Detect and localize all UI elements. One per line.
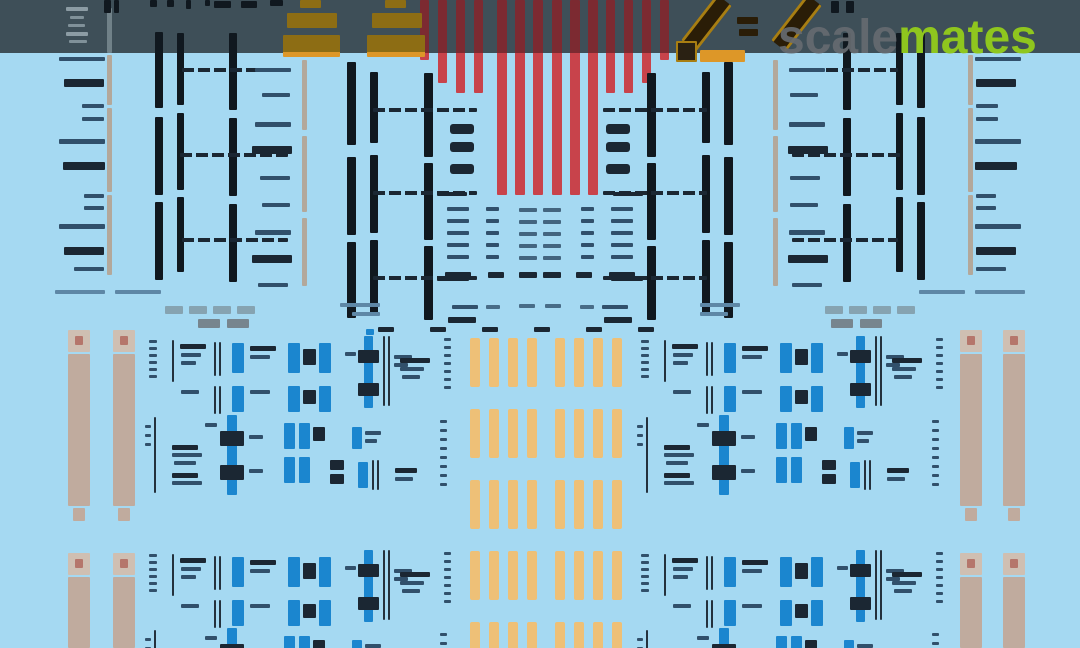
- band-decals-mark: [114, 0, 119, 13]
- panel-row-b-mark: [822, 474, 836, 484]
- panel-row-a-mark: [673, 575, 688, 579]
- decal-sheet-photo: scalemates: [0, 0, 1080, 648]
- center-data-grid-mark: [543, 208, 561, 212]
- gold-decals-mark: [372, 13, 422, 28]
- stencil-text-columns-mark: [792, 283, 822, 287]
- panel-row-b-mark: [299, 457, 310, 483]
- stencil-text-columns-mark: [258, 283, 288, 287]
- gold-box: [676, 41, 697, 62]
- panel-row-a-mark: [181, 575, 196, 579]
- center-tan-bars-mark: [527, 480, 537, 529]
- panel-row-a-mark: [850, 564, 871, 577]
- center-data-grid-mark: [486, 255, 499, 259]
- band-decals-mark: [241, 1, 257, 8]
- panel-row-a-mark: [850, 597, 871, 610]
- panel-row-b-mark: [299, 423, 310, 449]
- center-tan-bars-mark: [489, 551, 499, 600]
- walkway-red-stripes-mark: [606, 0, 615, 93]
- panel-row-a-mark: [364, 336, 373, 408]
- panel-row-a-mark: [936, 362, 943, 365]
- panel-row-a-mark: [892, 581, 916, 585]
- walkway-red-stripes-mark: [642, 0, 651, 83]
- panel-row-b-mark: [440, 420, 447, 423]
- panel-row-a-mark: [936, 600, 943, 603]
- panel-row-b-mark: [205, 423, 217, 427]
- crossbar-stencil-lines-mark: [182, 238, 288, 242]
- panel-row-a-mark: [936, 576, 943, 579]
- panel-row-a-mark: [181, 361, 196, 365]
- gold-decals-mark: [287, 13, 337, 28]
- center-data-grid-mark: [519, 232, 537, 236]
- stencil-text-columns-mark: [255, 230, 291, 235]
- edge-tan-stripes-mark: [68, 577, 90, 648]
- panel-row-a-mark: [358, 597, 379, 610]
- crossbar-stencil-lines-mark: [373, 108, 477, 112]
- panel-row-a-mark: [180, 558, 206, 563]
- panel-row-a-mark: [673, 361, 688, 365]
- stencil-text-columns-mark: [255, 122, 291, 127]
- gray-registration-stripes-mark: [107, 108, 112, 192]
- edge-tan-stripes-mark: [1008, 508, 1020, 521]
- gold-decals-mark: [283, 35, 340, 57]
- stencil-black-bars-mark: [177, 197, 184, 272]
- center-tan-bars-mark: [593, 622, 603, 648]
- stencil-text-columns-mark: [198, 319, 220, 328]
- edge-tan-stripes-mark: [73, 508, 85, 521]
- center-tan-bars-mark: [527, 622, 537, 648]
- panel-row-a-mark: [892, 572, 922, 577]
- edge-tan-stripes-mark: [118, 508, 130, 521]
- center-data-grid-mark: [447, 231, 469, 235]
- panel-row-a-mark: [742, 390, 762, 394]
- panel-row-a-mark: [936, 568, 943, 571]
- stencil-black-bars-mark: [155, 202, 163, 280]
- panel-row-a-mark: [706, 556, 708, 590]
- panel-row-a-mark: [795, 604, 808, 618]
- panel-row-a-mark: [850, 383, 871, 396]
- walkway-red-stripes-mark: [474, 0, 483, 93]
- band-decals-mark: [70, 16, 84, 19]
- panel-row-a-mark: [149, 582, 157, 585]
- center-tan-bars-mark: [612, 622, 622, 648]
- gold-decals-mark: [700, 50, 745, 62]
- panel-row-a-mark: [936, 346, 943, 349]
- stencil-text-columns-mark: [975, 290, 1025, 294]
- center-tan-bars-mark: [508, 338, 518, 387]
- panel-row-b-mark: [358, 462, 368, 488]
- stencil-text-columns-mark: [790, 176, 820, 180]
- band-decals-mark: [214, 1, 231, 8]
- panel-row-b-mark: [932, 483, 939, 486]
- panel-row-b-mark: [220, 644, 244, 648]
- panel-row-b-mark: [145, 443, 151, 446]
- panel-row-a-mark: [232, 557, 244, 587]
- walkway-red-stripes-mark: [588, 0, 598, 195]
- panel-row-a-mark: [303, 604, 316, 618]
- edge-tan-stripes-mark: [1010, 336, 1018, 345]
- center-tan-bars-mark: [508, 480, 518, 529]
- center-data-grid-mark: [519, 272, 537, 278]
- gray-registration-stripes-mark: [302, 60, 307, 130]
- panel-row-b-mark: [440, 429, 447, 432]
- stencil-black-bars-mark: [347, 157, 356, 235]
- panel-row-b-mark: [932, 633, 939, 636]
- panel-row-b-mark: [857, 431, 873, 435]
- panel-row-a-mark: [811, 557, 823, 587]
- stencil-text-columns-mark: [976, 247, 1016, 255]
- panel-row-b-mark: [330, 460, 344, 470]
- center-tan-bars-mark: [527, 409, 537, 458]
- panel-row-a-mark: [388, 550, 390, 620]
- stencil-black-bars-mark: [647, 163, 656, 240]
- panel-row-a-mark: [673, 604, 691, 608]
- center-tan-bars-mark: [574, 480, 584, 529]
- panel-row-b-mark: [205, 636, 217, 640]
- panel-row-a-mark: [149, 589, 157, 592]
- panel-row-a-mark: [641, 568, 649, 571]
- edge-tan-stripes-mark: [1010, 559, 1018, 568]
- panel-row-b-mark: [637, 443, 643, 446]
- panel-row-b-mark: [284, 457, 295, 483]
- center-tan-bars-mark: [593, 551, 603, 600]
- panel-row-a-mark: [936, 552, 943, 555]
- center-tan-bars-mark: [612, 551, 622, 600]
- panel-row-b-mark: [284, 636, 295, 648]
- panel-row-b-mark: [220, 465, 244, 480]
- panel-row-a-mark: [400, 572, 430, 577]
- panel-row-a-mark: [303, 390, 316, 404]
- gray-registration-stripes-mark: [773, 218, 778, 286]
- stencil-text-columns-mark: [976, 206, 996, 210]
- panel-row-b-mark: [932, 438, 939, 441]
- stencil-text-columns-mark: [352, 312, 380, 316]
- stencil-text-columns-mark: [59, 139, 105, 144]
- band-decals-mark: [69, 40, 87, 43]
- panel-row-b-mark: [220, 431, 244, 446]
- panel-row-b-mark: [805, 640, 817, 648]
- center-tan-bars-mark: [489, 338, 499, 387]
- panel-row-a-mark: [780, 343, 792, 373]
- panel-row-a-mark: [383, 550, 385, 620]
- center-data-grid-mark: [613, 192, 643, 196]
- panel-row-a-mark: [875, 550, 877, 620]
- panel-row-a-mark: [181, 567, 201, 571]
- panel-row-a-mark: [641, 554, 649, 557]
- panel-row-b-mark: [377, 460, 379, 490]
- panel-row-b-mark: [791, 636, 802, 648]
- panel-row-b-mark: [154, 630, 156, 648]
- panel-row-a-mark: [444, 552, 451, 555]
- panel-row-b-mark: [145, 425, 151, 428]
- panel-row-a-mark: [936, 338, 943, 341]
- center-data-grid-mark: [543, 232, 561, 236]
- stencil-black-bars-mark: [424, 163, 433, 240]
- stencil-text-columns-mark: [788, 255, 828, 263]
- center-tan-bars-mark: [555, 409, 565, 458]
- panel-row-b-mark: [440, 456, 447, 459]
- panel-row-a-mark: [894, 375, 912, 379]
- panel-row-b-mark: [365, 439, 377, 443]
- walkway-red-stripes-mark: [515, 0, 525, 195]
- center-data-grid-mark: [447, 219, 469, 223]
- panel-row-a-mark: [219, 342, 221, 376]
- panel-row-b-mark: [637, 638, 643, 641]
- stencil-text-columns-mark: [790, 203, 818, 207]
- gold-decals-mark: [737, 17, 758, 24]
- edge-tan-stripes-mark: [113, 577, 135, 648]
- panel-row-a-mark: [288, 386, 300, 412]
- panel-row-a-mark: [444, 386, 451, 389]
- panel-row-a-mark: [742, 569, 762, 573]
- panel-row-a-mark: [850, 350, 871, 363]
- panel-row-b-mark: [172, 453, 202, 457]
- center-data-grid-mark: [448, 317, 476, 323]
- panel-row-a-mark: [795, 390, 808, 404]
- center-data-grid-mark: [519, 244, 537, 248]
- section-divider-marks-mark: [430, 327, 446, 332]
- edge-tan-stripes-mark: [75, 559, 83, 568]
- center-data-grid-mark: [488, 272, 504, 278]
- stencil-text-columns-mark: [976, 79, 1016, 87]
- edge-tan-stripes-mark: [120, 336, 128, 345]
- stencil-black-bars-mark: [917, 202, 925, 280]
- stencil-text-columns-mark: [860, 319, 882, 328]
- panel-row-a-mark: [149, 568, 157, 571]
- panel-row-a-mark: [214, 386, 216, 414]
- center-tan-bars-mark: [470, 622, 480, 648]
- stencil-black-bars-mark: [229, 118, 237, 196]
- stencil-text-columns-mark: [975, 162, 1017, 170]
- center-data-grid-mark: [447, 255, 469, 259]
- panel-row-a-mark: [664, 554, 666, 596]
- section-divider-marks-mark: [586, 327, 602, 332]
- stencil-text-columns-mark: [64, 79, 104, 87]
- panel-row-a-mark: [672, 558, 698, 563]
- stencil-black-bars-mark: [647, 73, 656, 157]
- stencil-text-columns-mark: [55, 290, 105, 294]
- panel-row-a-mark: [880, 550, 882, 620]
- panel-row-a-mark: [444, 584, 451, 587]
- stencil-text-columns-mark: [82, 117, 104, 121]
- panel-row-a-mark: [181, 604, 199, 608]
- center-data-grid-mark: [543, 244, 561, 248]
- panel-row-a-mark: [388, 336, 390, 406]
- edge-tan-stripes-mark: [75, 336, 83, 345]
- stencil-text-columns-mark: [340, 303, 380, 307]
- panel-row-a-mark: [706, 600, 708, 628]
- center-data-grid-mark: [447, 207, 469, 211]
- stencil-text-columns-mark: [227, 319, 249, 328]
- panel-row-a-mark: [724, 600, 736, 626]
- gold-decals-mark: [367, 35, 425, 57]
- stencil-text-columns-mark: [897, 306, 915, 314]
- walkway-red-stripes-mark: [624, 0, 633, 93]
- center-data-grid-mark: [543, 220, 561, 224]
- center-data-grid-mark: [581, 231, 594, 235]
- stencil-text-columns-mark: [976, 104, 998, 108]
- center-data-grid-mark: [543, 256, 561, 260]
- stencil-black-bars-mark: [843, 118, 851, 196]
- panel-row-a-mark: [880, 336, 882, 406]
- panel-row-a-mark: [673, 567, 693, 571]
- panel-row-b-mark: [697, 423, 709, 427]
- panel-row-b-mark: [172, 445, 198, 450]
- panel-row-b-mark: [869, 460, 871, 490]
- walkway-red-stripes-mark: [497, 0, 507, 195]
- panel-row-b-mark: [864, 460, 866, 490]
- edge-tan-stripes-mark: [120, 559, 128, 568]
- panel-row-b-mark: [330, 474, 344, 484]
- panel-row-b-mark: [299, 636, 310, 648]
- panel-row-a-mark: [724, 386, 736, 412]
- panel-row-b-mark: [791, 457, 802, 483]
- gray-registration-stripes-mark: [107, 55, 112, 105]
- panel-row-a-mark: [724, 343, 736, 373]
- panel-row-a-mark: [319, 343, 331, 373]
- stencil-text-columns-mark: [975, 224, 1021, 229]
- panel-row-a-mark: [672, 344, 698, 349]
- panel-row-a-mark: [641, 368, 649, 371]
- center-data-grid-mark: [486, 231, 499, 235]
- walkway-red-stripes-mark: [570, 0, 580, 195]
- panel-row-b-mark: [712, 644, 736, 648]
- center-data-grid-mark: [580, 305, 594, 309]
- edge-tan-stripes-mark: [960, 577, 982, 648]
- stencil-text-columns-mark: [825, 306, 843, 314]
- center-tan-bars-mark: [470, 409, 480, 458]
- panel-row-a-mark: [811, 343, 823, 373]
- panel-row-b-mark: [850, 462, 860, 488]
- panel-row-a-mark: [400, 367, 424, 371]
- center-tan-bars-mark: [508, 551, 518, 600]
- panel-row-b-mark: [664, 453, 694, 457]
- panel-row-a-mark: [892, 367, 916, 371]
- stencil-text-columns-mark: [64, 247, 104, 255]
- center-data-grid-mark: [486, 207, 499, 211]
- panel-row-a-mark: [795, 563, 808, 579]
- panel-row-a-mark: [219, 386, 221, 414]
- center-data-grid-mark: [611, 207, 633, 211]
- stencil-text-columns-mark: [849, 306, 867, 314]
- panel-row-b-mark: [145, 638, 151, 641]
- panel-row-a-mark: [780, 386, 792, 412]
- band-decals-mark: [104, 0, 111, 13]
- panel-row-a-mark: [400, 358, 430, 363]
- band-decals-mark: [107, 8, 112, 53]
- stencil-text-columns-mark: [213, 306, 231, 314]
- panel-row-a-mark: [641, 561, 649, 564]
- panel-row-b-mark: [857, 644, 873, 648]
- center-data-grid-mark: [437, 192, 467, 196]
- panel-row-b-mark: [664, 481, 694, 485]
- center-tan-bars-mark: [489, 409, 499, 458]
- center-data-grid-mark: [486, 219, 499, 223]
- panel-row-b-mark: [440, 474, 447, 477]
- center-tan-bars-mark: [555, 622, 565, 648]
- panel-row-a-mark: [358, 350, 379, 363]
- panel-row-a-mark: [444, 592, 451, 595]
- panel-row-a-mark: [402, 589, 420, 593]
- panel-row-a-mark: [892, 358, 922, 363]
- panel-row-b-mark: [666, 461, 688, 465]
- center-tan-bars-mark: [555, 338, 565, 387]
- panel-row-a-mark: [214, 342, 216, 376]
- panel-row-b-mark: [719, 415, 729, 495]
- center-tan-bars-mark: [612, 338, 622, 387]
- panel-row-b-mark: [145, 434, 151, 437]
- gray-registration-stripes-mark: [773, 60, 778, 130]
- panel-row-a-mark: [641, 340, 649, 343]
- gray-registration-stripes-mark: [302, 218, 307, 286]
- panel-row-a-mark: [936, 386, 943, 389]
- stencil-text-columns-mark: [260, 176, 290, 180]
- panel-row-a-mark: [641, 589, 649, 592]
- stencil-text-columns-mark: [975, 139, 1021, 144]
- panel-row-b-mark: [365, 644, 381, 648]
- edge-tan-stripes-mark: [965, 508, 977, 521]
- center-tan-bars-mark: [470, 551, 480, 600]
- panel-row-a-mark: [250, 346, 276, 351]
- panel-row-a-mark: [172, 340, 174, 382]
- center-data-grid-mark: [581, 207, 594, 211]
- stencil-black-bars-mark: [424, 246, 433, 320]
- stencil-text-columns-mark: [262, 93, 290, 97]
- panel-row-b-mark: [776, 423, 787, 449]
- panel-row-b-mark: [664, 473, 690, 478]
- panel-row-a-mark: [250, 560, 276, 565]
- center-data-grid-mark: [611, 255, 633, 259]
- stencil-text-columns-mark: [115, 290, 161, 294]
- stencil-text-columns-mark: [450, 164, 474, 174]
- center-data-grid-mark: [611, 219, 633, 223]
- panel-row-a-mark: [711, 386, 713, 414]
- band-decals-mark: [66, 32, 88, 36]
- panel-row-a-mark: [795, 349, 808, 365]
- panel-row-b-mark: [776, 457, 787, 483]
- panel-row-a-mark: [288, 557, 300, 587]
- center-tan-bars-mark: [508, 409, 518, 458]
- panel-row-b-mark: [284, 423, 295, 449]
- center-data-grid-mark: [609, 272, 635, 278]
- stencil-text-columns-mark: [74, 267, 104, 271]
- panel-row-a-mark: [303, 349, 316, 365]
- panel-row-a-mark: [232, 386, 244, 412]
- panel-row-a-mark: [706, 342, 708, 376]
- panel-row-b-mark: [440, 465, 447, 468]
- panel-row-a-mark: [319, 557, 331, 587]
- center-data-grid-mark: [519, 220, 537, 224]
- stencil-text-columns-mark: [450, 124, 474, 134]
- panel-row-a-mark: [444, 576, 451, 579]
- panel-row-a-mark: [837, 566, 848, 570]
- panel-row-b-mark: [395, 468, 417, 473]
- edge-tan-stripes-mark: [68, 354, 90, 506]
- edge-tan-stripes-mark: [113, 354, 135, 506]
- panel-row-b-mark: [646, 417, 648, 493]
- walkway-red-stripes-mark: [552, 0, 562, 195]
- gray-registration-stripes-mark: [107, 195, 112, 275]
- stencil-text-columns-mark: [976, 267, 1006, 271]
- panel-row-a-mark: [444, 354, 451, 357]
- panel-row-a-mark: [936, 560, 943, 563]
- stencil-text-columns-mark: [237, 306, 255, 314]
- center-data-grid-mark: [581, 243, 594, 247]
- panel-row-a-mark: [780, 600, 792, 626]
- walkway-red-stripes-mark: [456, 0, 465, 93]
- band-decals-mark: [167, 0, 174, 7]
- panel-row-a-mark: [742, 355, 762, 359]
- stencil-text-columns-mark: [606, 142, 630, 152]
